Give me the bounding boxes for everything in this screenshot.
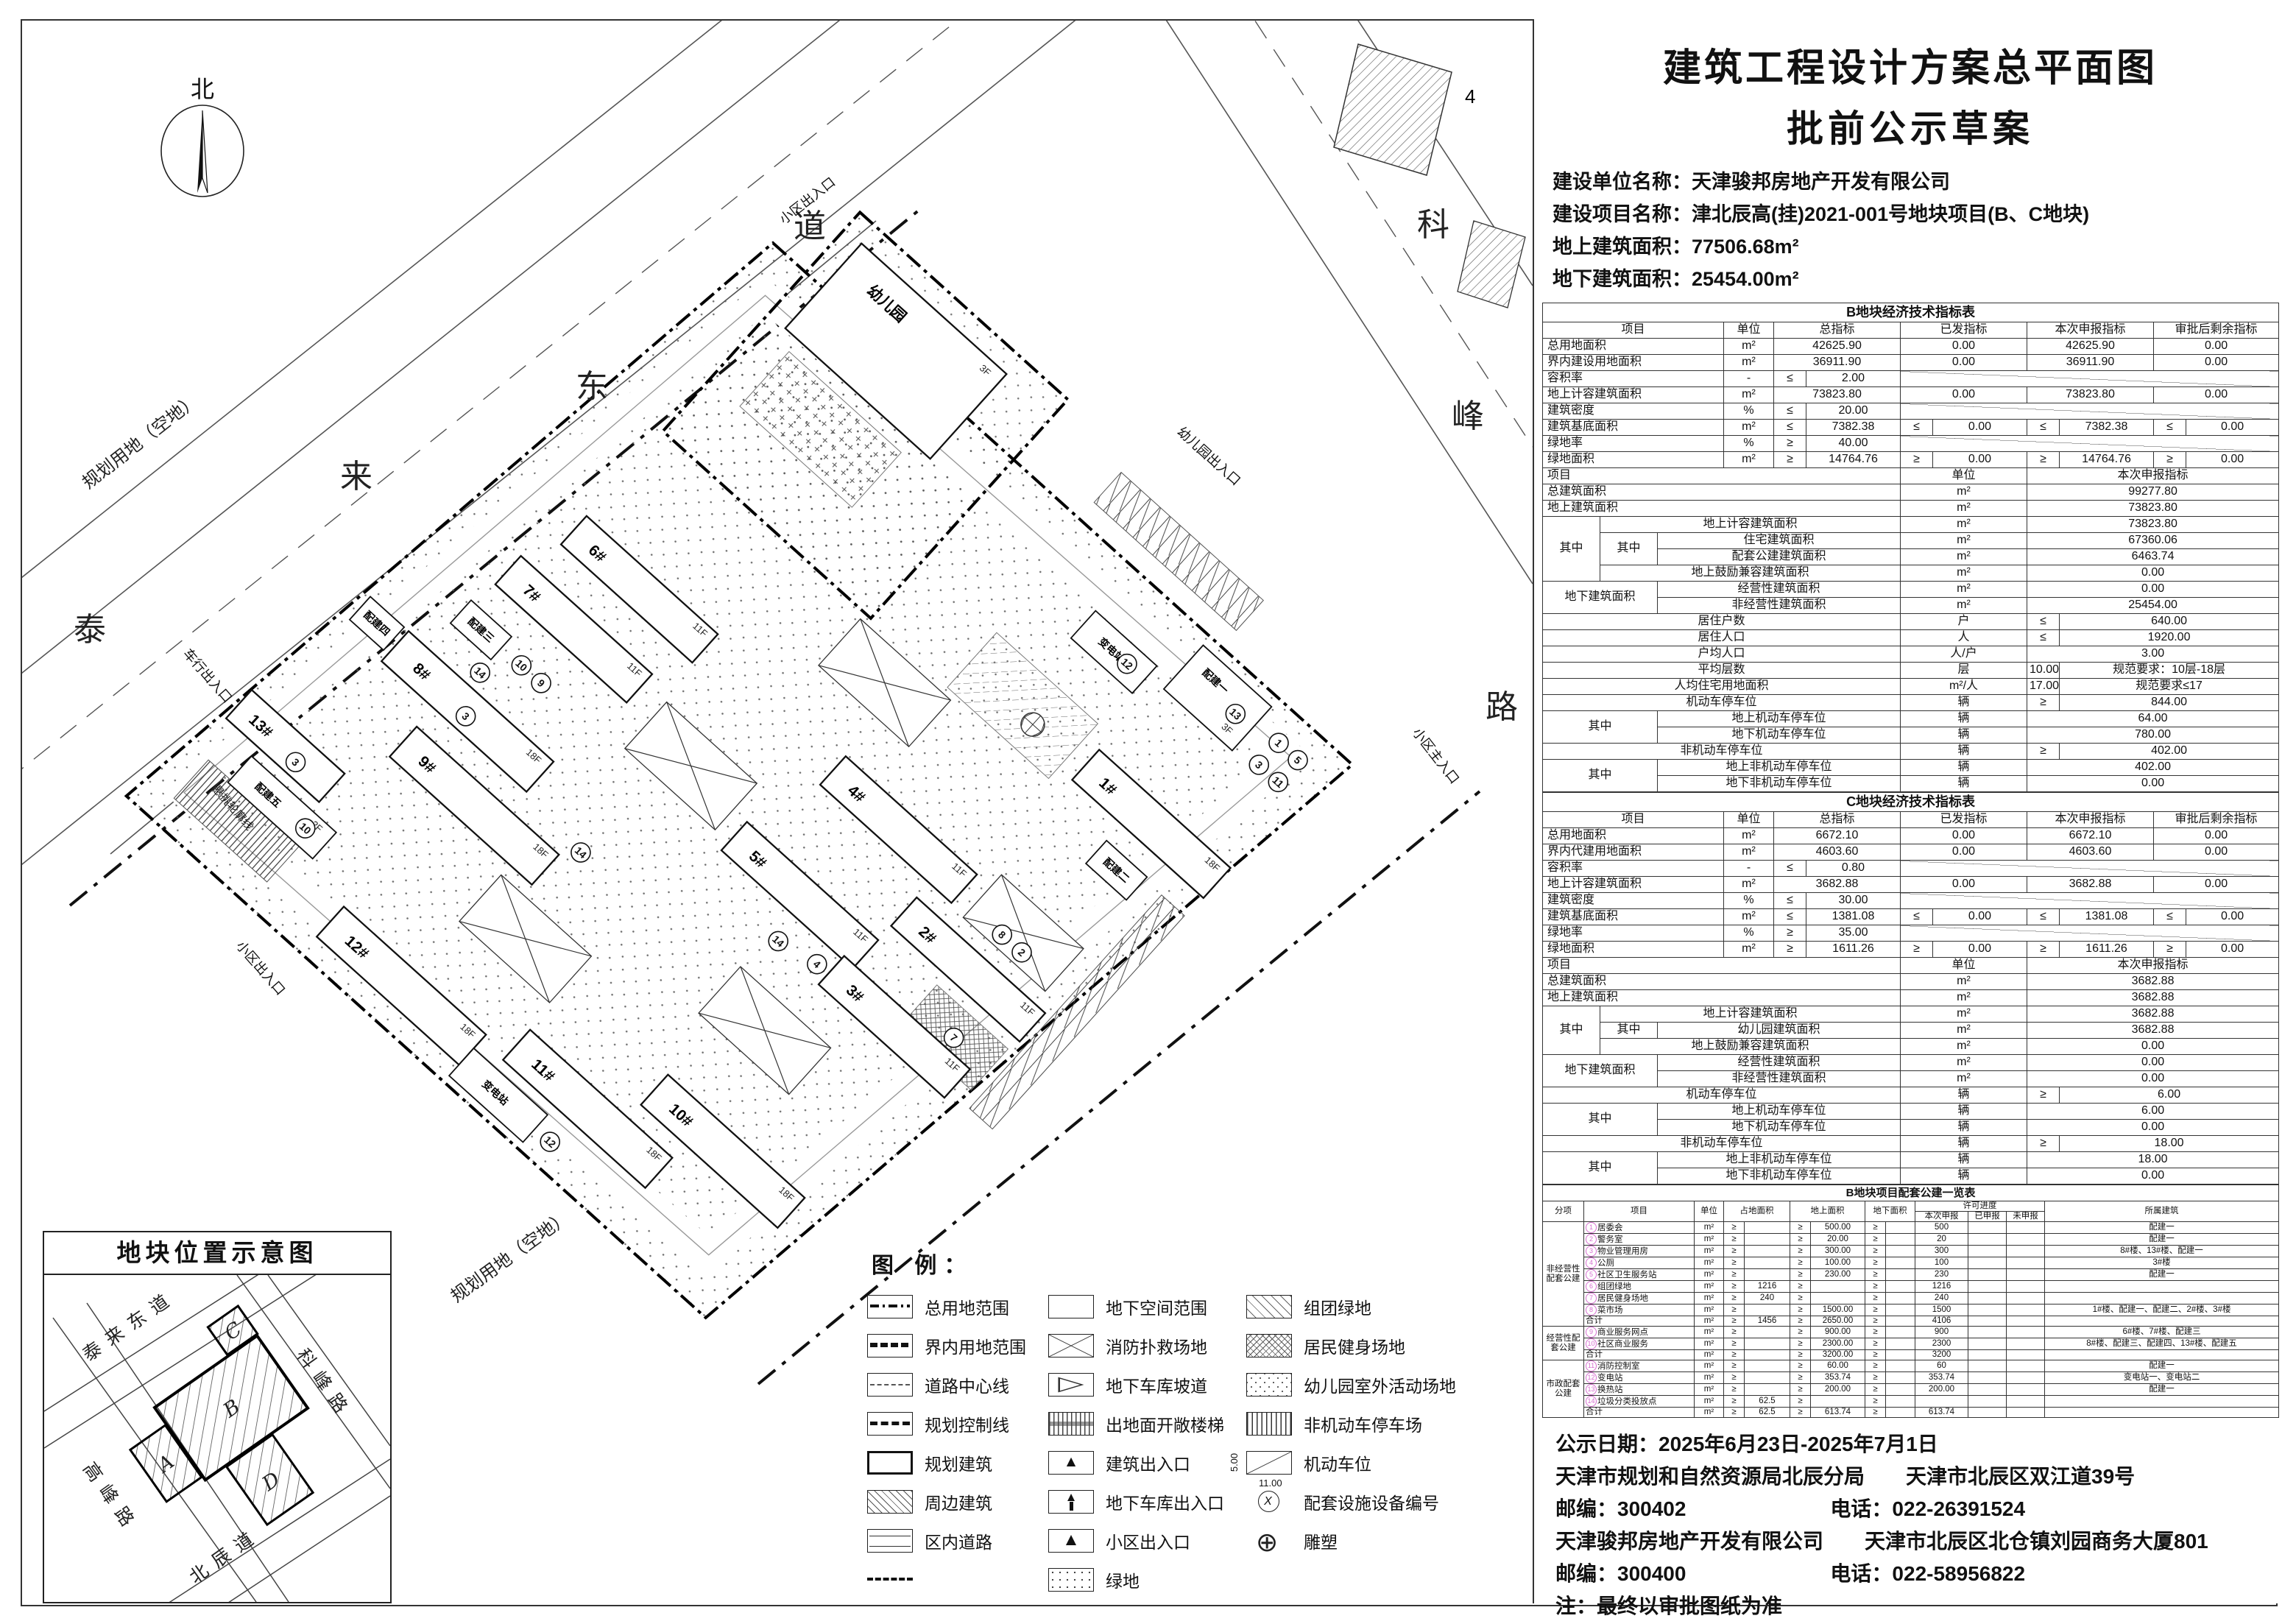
table-cell — [2007, 1327, 2045, 1338]
table-cell: m² — [1901, 1071, 2027, 1087]
table-cell: 辆 — [1901, 1104, 2027, 1120]
table-cell: ≥ — [1724, 1350, 1745, 1360]
planned-swatch-icon — [867, 1451, 913, 1475]
table-cell: 地上机动车停车位 — [1658, 711, 1901, 727]
table-cell: m² — [1724, 909, 1774, 925]
table-cell: 200.00 — [1811, 1384, 1865, 1396]
legend-item: 小区出入口 — [1048, 1521, 1224, 1560]
legend-item: 居民健身场地 — [1246, 1326, 1456, 1365]
table-cell: 容积率 — [1543, 371, 1724, 387]
table-cell: 规范要求：10层-18层 — [2060, 663, 2279, 679]
table-cell: m² — [1901, 1006, 2027, 1023]
table-cell: 0.00 — [2154, 828, 2279, 844]
table-cell: 容积率 — [1543, 861, 1724, 877]
table-cell — [2045, 1281, 2279, 1293]
table-cell: m² — [1901, 549, 2027, 565]
table-cell — [2045, 1408, 2279, 1418]
table-cell — [2045, 1316, 2279, 1327]
table-cell: 73823.80 — [2027, 387, 2154, 403]
table-cell: 36911.90 — [1774, 355, 1901, 371]
table-cell: 1216 — [1745, 1281, 1790, 1293]
table-cell: 0.00 — [2027, 1055, 2279, 1071]
legend-item: 幼儿园室外活动场地 — [1246, 1365, 1456, 1404]
table-cell: ≥ — [1724, 1372, 1745, 1384]
info-below-area: 地下建筑面积：25454.00m² — [1553, 263, 2278, 295]
table-cell: 60 — [1915, 1360, 1968, 1372]
table-public-facilities: B地块项目配套公建一览表分项项目单位占地面积地上面积地下面积许可进度所属建筑本次… — [1542, 1185, 2278, 1418]
table-cell: m² — [1901, 517, 2027, 533]
table-cell: m² — [1724, 828, 1774, 844]
table-cell: m² — [1695, 1350, 1724, 1360]
table-cell: 1611.26 — [2060, 942, 2154, 958]
table-cell: 非经营性建筑面积 — [1658, 598, 1901, 614]
table-cell: 地下建筑面积 — [1543, 1055, 1658, 1087]
table-cell: 本次申报指标 — [2027, 468, 2279, 484]
table-cell: % — [1724, 436, 1774, 452]
table-cell: 60.00 — [1811, 1360, 1865, 1372]
table-cell — [1968, 1222, 2007, 1234]
table-cell: ≤ — [1774, 371, 1806, 387]
circled-number: 4 — [1586, 1257, 1597, 1268]
table-cell: 3#楼 — [2045, 1257, 2279, 1269]
table-cell: 40.00 — [1806, 436, 1901, 452]
table-cell: 其中 — [1600, 1023, 1658, 1039]
table-cell: m² — [1901, 1039, 2027, 1055]
table-cell: 0.00 — [2027, 1120, 2279, 1136]
community-entry-label-left: 小区出入口 — [233, 939, 288, 998]
table-cell: m² — [1695, 1327, 1724, 1338]
table-cell: ≥ — [1724, 1257, 1745, 1269]
svg-text:峰: 峰 — [1452, 398, 1484, 434]
legend-label: 非机动车停车场 — [1304, 1411, 1422, 1436]
table-cell: 审批后剩余指标 — [2154, 812, 2279, 828]
info-project: 建设项目名称：津北辰高(挂)2021-001号地块项目(B、C地块) — [1553, 198, 2278, 230]
table-cell: 非机动车停车位 — [1543, 1136, 1901, 1152]
centerline-swatch-icon — [867, 1373, 913, 1397]
table-cell: 非机动车停车位 — [1543, 744, 1901, 760]
north-arrow: 北 — [161, 76, 244, 197]
table-cell — [1886, 1246, 1915, 1257]
table-cell: ≥ — [2027, 942, 2060, 958]
legend-title: 图 例： — [872, 1247, 1530, 1279]
table-cell: ≥ — [1865, 1246, 1886, 1257]
table-cell: ≥ — [1865, 1316, 1886, 1327]
table-cell: 500 — [1915, 1222, 1968, 1234]
table-cell: 6#楼、7#楼、配建三 — [2045, 1327, 2279, 1338]
table-cell: 6.00 — [2027, 1104, 2279, 1120]
table-cell: ≥ — [1865, 1384, 1886, 1396]
table-cell: ≤ — [1901, 420, 1933, 436]
table-cell: m² — [1695, 1257, 1724, 1269]
legend-item: 组团绿地 — [1246, 1287, 1456, 1326]
circled-number: 2 — [1586, 1234, 1597, 1245]
table-cell: ≥ — [1790, 1408, 1811, 1418]
table-cell — [1901, 403, 2279, 420]
table-cell: m² — [1724, 942, 1774, 958]
table-cell: 单位 — [1695, 1201, 1724, 1222]
parking-swatch-icon: 5.0011.00 — [1246, 1451, 1292, 1475]
table-cell: ≥ — [1724, 1327, 1745, 1338]
green-swatch-icon — [1048, 1568, 1094, 1592]
table-cell: m² — [1695, 1338, 1724, 1350]
table-cell — [1968, 1350, 2007, 1360]
table-cell: ≥ — [1865, 1350, 1886, 1360]
table-cell: 1500 — [1915, 1305, 1968, 1316]
table-cell: 审批后剩余指标 — [2154, 322, 2279, 339]
table-cell: 辆 — [1901, 1136, 2027, 1152]
table-cell — [1901, 925, 2279, 942]
table-cell: 其中 — [1543, 517, 1600, 582]
table-cell: m² — [1724, 355, 1774, 371]
circled-number: 6 — [1586, 1281, 1597, 1292]
table-cell: 1456 — [1745, 1316, 1790, 1327]
table-cell: 经营性建筑面积 — [1658, 582, 1901, 598]
table-cell: 900 — [1915, 1327, 1968, 1338]
table-cell — [1968, 1305, 2007, 1316]
table-cell: 本次申报指标 — [2027, 812, 2154, 828]
legend-item: 雕塑 — [1246, 1521, 1456, 1560]
table-cell — [1968, 1269, 2007, 1281]
table-cell — [1915, 1396, 1968, 1408]
table-cell: m² — [1695, 1408, 1724, 1418]
legend-label: 规划建筑 — [925, 1450, 992, 1475]
table-cell — [1745, 1338, 1790, 1350]
table-cell: 市政配套公建 — [1543, 1360, 1584, 1418]
table-cell: 0.00 — [2186, 909, 2279, 925]
bureau-address: 天津市规划和自然资源局北辰分局 天津市北辰区双江道39号 — [1555, 1461, 2278, 1493]
table-cell: ≥ — [1790, 1305, 1811, 1316]
table-cell — [1886, 1257, 1915, 1269]
table-cell: 项目 — [1543, 812, 1724, 828]
table-cell: 0.00 — [2154, 844, 2279, 861]
table-cell: ≥ — [1790, 1234, 1811, 1246]
table-cell: 单位 — [1724, 322, 1774, 339]
table-cell: 规范要求≤17 — [2060, 679, 2279, 695]
legend-item: 道路中心线 — [867, 1365, 1026, 1404]
table-cell: ≥ — [1865, 1257, 1886, 1269]
table-cell: ≥ — [1901, 452, 1933, 468]
table-cell: 20.00 — [1811, 1234, 1865, 1246]
legend-label: 地下空间范围 — [1106, 1294, 1207, 1319]
table-cell — [1886, 1396, 1915, 1408]
table-cell: 总指标 — [1774, 322, 1901, 339]
table-cell — [1886, 1338, 1915, 1350]
legend-label: 消防扑救场地 — [1106, 1333, 1207, 1358]
circled-number: 8 — [1586, 1305, 1597, 1316]
table-cell — [1968, 1408, 2007, 1418]
table-cell: B地块经济技术指标表 — [1543, 303, 2279, 322]
sheet-subtitle: 批前公示草案 — [1542, 99, 2278, 152]
table-cell: ≥ — [1865, 1305, 1886, 1316]
site-area: 6#11F 7#11F 配建三 8#18F 配建四 13# 配建五2F 9#18… — [127, 109, 1407, 1391]
table-cell — [2007, 1360, 2045, 1372]
table-cell: 67360.06 — [2027, 533, 2279, 549]
equip-swatch-icon — [1246, 1490, 1292, 1514]
table-cell: 20 — [1915, 1234, 1968, 1246]
table-cell: ≤ — [1774, 893, 1806, 909]
table-cell: 0.00 — [2186, 420, 2279, 436]
table-cell — [1968, 1360, 2007, 1372]
table-cell: m² — [1901, 501, 2027, 517]
table-cell — [1886, 1360, 1915, 1372]
legend-item: 规划建筑 — [867, 1443, 1026, 1482]
circled-number: 9 — [1586, 1327, 1597, 1338]
table-cell: ≥ — [1774, 942, 1806, 958]
table-cell: ≥ — [1865, 1293, 1886, 1305]
table-cell — [1968, 1234, 2007, 1246]
table-cell — [2007, 1281, 2045, 1293]
table-cell: ≤ — [2027, 630, 2060, 646]
table-cell — [2007, 1372, 2045, 1384]
table-cell: 240 — [1915, 1293, 1968, 1305]
table-cell: 其中 — [1543, 711, 1658, 744]
table-cell: m² — [1724, 877, 1774, 893]
table-cell: 人均住宅用地面积 — [1543, 679, 1901, 695]
table-cell: 配建一 — [2045, 1269, 2279, 1281]
table-cell: 地上面积 — [1790, 1201, 1865, 1222]
rangetotal-swatch-icon — [867, 1295, 913, 1318]
table-cell — [2007, 1396, 2045, 1408]
table-cell: 4公厕 — [1584, 1257, 1695, 1269]
table-cell: 200.00 — [1915, 1384, 1968, 1396]
table-cell: 62.5 — [1745, 1396, 1790, 1408]
info-owner: 建设单位名称：天津骏邦房地产开发有限公司 — [1553, 166, 2278, 198]
table-cell: ≤ — [1774, 861, 1806, 877]
table-cell: m² — [1724, 420, 1774, 436]
table-cell: 42625.90 — [2027, 339, 2154, 355]
table-cell: 3682.88 — [2027, 990, 2279, 1006]
table-cell: 1#楼、配建一、配建二、2#楼、3#楼 — [2045, 1305, 2279, 1316]
table-cell: ≤ — [2027, 909, 2060, 925]
legend-item: 界内用地范围 — [867, 1326, 1026, 1365]
table-cell: m² — [1724, 452, 1774, 468]
table-cell: 层 — [1901, 663, 2027, 679]
table-cell: ≤ — [2154, 909, 2186, 925]
table-cell: 所属建筑 — [2045, 1201, 2279, 1222]
table-cell: 本次申报指标 — [2027, 958, 2279, 974]
table-cell: m² — [1901, 565, 2027, 582]
table-cell: 辆 — [1901, 695, 2027, 711]
table-cell: m² — [1695, 1384, 1724, 1396]
table-cell — [1811, 1281, 1865, 1293]
legend-label: 出地面开敞楼梯 — [1106, 1411, 1224, 1436]
table-cell: 3682.88 — [2027, 1023, 2279, 1039]
table-cell: 界内建设用地面积 — [1543, 355, 1724, 371]
table-cell: ≥ — [1724, 1281, 1745, 1293]
table-cell: m² — [1901, 484, 2027, 501]
table-cell: ≥ — [1865, 1327, 1886, 1338]
table-cell — [2007, 1338, 2045, 1350]
table-cell — [1886, 1234, 1915, 1246]
table-cell: m² — [1901, 974, 2027, 990]
table-cell: ≤ — [2027, 614, 2060, 630]
table-cell: 1381.08 — [2060, 909, 2154, 925]
table-cell: 项目 — [1543, 468, 1901, 484]
table-cell: 辆 — [1901, 1120, 2027, 1136]
inset-road-beichendao: 北辰道 — [186, 1524, 264, 1588]
table-cell: 总指标 — [1774, 812, 1901, 828]
legend-label: 总用地范围 — [925, 1294, 1009, 1319]
table-cell: 本次申报指标 — [2027, 322, 2154, 339]
around-swatch-icon — [867, 1490, 913, 1514]
table-cell: 建筑基底面积 — [1543, 909, 1724, 925]
table-cell: 0.00 — [2027, 582, 2279, 598]
table-cell: C地块经济技术指标表 — [1543, 793, 2279, 812]
table-cell: ≥ — [1790, 1350, 1811, 1360]
table-cell: 8菜市场 — [1584, 1305, 1695, 1316]
inset-title: 地块位置示意图 — [44, 1232, 390, 1275]
legend-label: 区内道路 — [925, 1528, 992, 1553]
table-cell: 2.00 — [1806, 371, 1901, 387]
legend-item: 地下空间范围 — [1048, 1287, 1224, 1326]
table-cell: ≥ — [1724, 1396, 1745, 1408]
table-cell: 73823.80 — [1774, 387, 1901, 403]
table-cell: 总用地面积 — [1543, 339, 1724, 355]
table-cell — [2045, 1396, 2279, 1408]
table-cell: 13换热站 — [1584, 1384, 1695, 1396]
table-cell: ≥ — [1790, 1372, 1811, 1384]
table-cell: ≥ — [1790, 1338, 1811, 1350]
table-cell — [1886, 1281, 1915, 1293]
legend-label: 居民健身场地 — [1304, 1333, 1405, 1358]
svg-text:科: 科 — [1417, 207, 1449, 243]
legend-item: 地下车库坡道 — [1048, 1365, 1224, 1404]
table-cell: 地下非机动车停车位 — [1658, 776, 1901, 792]
table-cell: 6.00 — [2060, 1087, 2279, 1104]
table-cell: ≥ — [1774, 436, 1806, 452]
table-cell: 地下建筑面积 — [1543, 582, 1658, 614]
table-cell: 合计 — [1584, 1408, 1695, 1418]
table-cell: 11消防控制室 — [1584, 1360, 1695, 1372]
table-cell — [2007, 1222, 2045, 1234]
table-cell: 8#楼、配建三、配建四、13#楼、配建五 — [2045, 1338, 2279, 1350]
table-cell — [1901, 371, 2279, 387]
table-cell: ≤ — [1774, 403, 1806, 420]
table-cell — [1968, 1327, 2007, 1338]
legend-item: 5.0011.00机动车位 — [1246, 1443, 1456, 1482]
table-cell: 0.00 — [1933, 452, 2027, 468]
table-cell: m² — [1695, 1316, 1724, 1327]
table-cell: 20.00 — [1806, 403, 1901, 420]
table-cell: m² — [1695, 1234, 1724, 1246]
xqentry-swatch-icon — [1048, 1529, 1094, 1553]
table-cell: 0.00 — [2154, 387, 2279, 403]
table-cell: ≥ — [1774, 452, 1806, 468]
table-cell: 地上鼓励兼容建筑面积 — [1600, 565, 1901, 582]
table-cell: 占地面积 — [1724, 1201, 1790, 1222]
table-cell: ≤ — [1774, 909, 1806, 925]
legend-item: 周边建筑 — [867, 1482, 1026, 1521]
table-cell: 项目 — [1543, 322, 1724, 339]
table-cell: 402.00 — [2027, 760, 2279, 776]
circled-number: 1 — [1586, 1222, 1597, 1233]
table-cell: ≥ — [2027, 744, 2060, 760]
fitness-swatch-icon — [1246, 1334, 1292, 1358]
legend-label: 地下车库坡道 — [1106, 1372, 1207, 1397]
table-cell — [1811, 1396, 1865, 1408]
table-cell: 辆 — [1901, 1152, 2027, 1168]
table-cell: 本次申报 — [1915, 1212, 1968, 1222]
table-cell: 0.00 — [1901, 877, 2027, 893]
table-cell — [1968, 1338, 2007, 1350]
table-cell: 变电站一、变电站二 — [2045, 1372, 2279, 1384]
table-cell: 100.00 — [1811, 1257, 1865, 1269]
table-cell: 3物业管理用房 — [1584, 1246, 1695, 1257]
underground-swatch-icon — [1048, 1295, 1094, 1318]
table-cell: ≥ — [1790, 1327, 1811, 1338]
table-cell: m² — [1901, 598, 2027, 614]
table-cell: 辆 — [1901, 776, 2027, 792]
legend-col-2: 地下空间范围消防扑救场地地下车库坡道出地面开敞楼梯建筑出入口地下车库出入口小区出… — [1048, 1287, 1224, 1599]
table-cell: 1216 — [1915, 1281, 1968, 1293]
table-cell — [1745, 1305, 1790, 1316]
table-cell: 地上非机动车停车位 — [1658, 1152, 1901, 1168]
table-cell: 0.00 — [1901, 355, 2027, 371]
table-cell: 0.00 — [1901, 844, 2027, 861]
table-cell: 机动车停车位 — [1543, 695, 1901, 711]
table-cell: 2警务室 — [1584, 1234, 1695, 1246]
table-cell: ≥ — [2027, 452, 2060, 468]
legend-col-3: 组团绿地居民健身场地幼儿园室外活动场地非机动车停车场5.0011.00机动车位配… — [1246, 1287, 1456, 1599]
table-cell: 0.00 — [1933, 909, 2027, 925]
table-cell: ≥ — [2027, 1136, 2060, 1152]
table-cell: 780.00 — [2027, 727, 2279, 744]
table-cell — [2007, 1293, 2045, 1305]
table-cell: 73823.80 — [2027, 517, 2279, 533]
info-panel: 建筑工程设计方案总平面图 批前公示草案 建设单位名称：天津骏邦房地产开发有限公司… — [1533, 19, 2286, 1603]
table-cell: 17.00 — [2027, 679, 2060, 695]
table-cell: 100 — [1915, 1257, 1968, 1269]
table-cell: 36911.90 — [2027, 355, 2154, 371]
table-cell: ≥ — [1865, 1222, 1886, 1234]
table-cell — [1745, 1327, 1790, 1338]
table-cell: B地块项目配套公建一览表 — [1543, 1185, 2279, 1201]
location-inset: 地块位置示意图 B A C D 泰来东道 科峰路 高峰路 北辰道 — [43, 1231, 392, 1603]
table-cell: m² — [1695, 1246, 1724, 1257]
publicity-date: 公示日期：2025年6月23日-2025年7月1日 — [1555, 1428, 2278, 1461]
table-cell: 7382.38 — [2060, 420, 2154, 436]
legend-item: 非机动车停车场 — [1246, 1404, 1456, 1443]
table-cell: 人/户 — [1901, 646, 2027, 663]
table-cell: 1920.00 — [2060, 630, 2279, 646]
table-cell: 地下面积 — [1865, 1201, 1915, 1222]
table-cell — [1901, 893, 2279, 909]
table-cell: 0.00 — [1933, 942, 2027, 958]
table-cell: m² — [1901, 990, 2027, 1006]
table-cell: 绿地率 — [1543, 436, 1724, 452]
table-cell: 300.00 — [1811, 1246, 1865, 1257]
table-cell: 10.00 — [2027, 663, 2060, 679]
table-cell — [1968, 1384, 2007, 1396]
table-cell: 总建筑面积 — [1543, 974, 1901, 990]
circled-number: 12 — [1586, 1372, 1597, 1383]
table-cell: 建筑基底面积 — [1543, 420, 1724, 436]
table-cell: 合计 — [1584, 1350, 1695, 1360]
rangeinner-swatch-icon — [867, 1334, 913, 1358]
table-cell: m² — [1695, 1222, 1724, 1234]
gentry-swatch-icon — [1048, 1490, 1094, 1514]
table-cell — [1745, 1234, 1790, 1246]
table-cell: 机动车停车位 — [1543, 1087, 1901, 1104]
table-cell — [1968, 1316, 2007, 1327]
table-cell: 4603.60 — [2027, 844, 2154, 861]
table-cell — [2007, 1305, 2045, 1316]
table-cell: 地上计容建筑面积 — [1543, 387, 1724, 403]
kindergarten-entry-label: 幼儿园出入口 — [1174, 424, 1243, 488]
table-cell: 配建一 — [2045, 1384, 2279, 1396]
table-cell: ≥ — [1724, 1408, 1745, 1418]
ramp-swatch-icon — [1048, 1373, 1094, 1397]
